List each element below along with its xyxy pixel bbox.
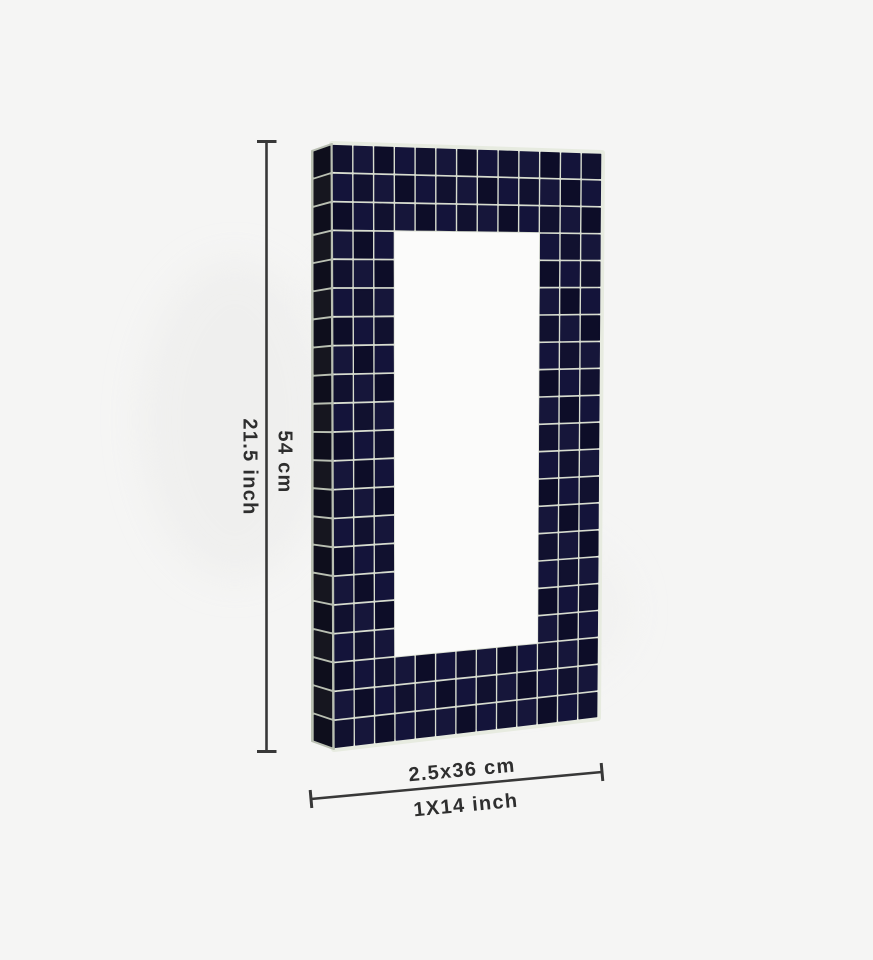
mosaic-frame xyxy=(312,144,602,749)
height-label-metric: 54 cm xyxy=(273,430,296,493)
width-dimension-left-cap xyxy=(310,790,312,808)
width-dimension-right-cap xyxy=(601,763,603,781)
height-label-imperial: 21.5 inch xyxy=(238,418,261,515)
product-dimension-diagram: 54 cm 21.5 inch 2.5x36 cm 1X14 inch xyxy=(0,0,873,960)
